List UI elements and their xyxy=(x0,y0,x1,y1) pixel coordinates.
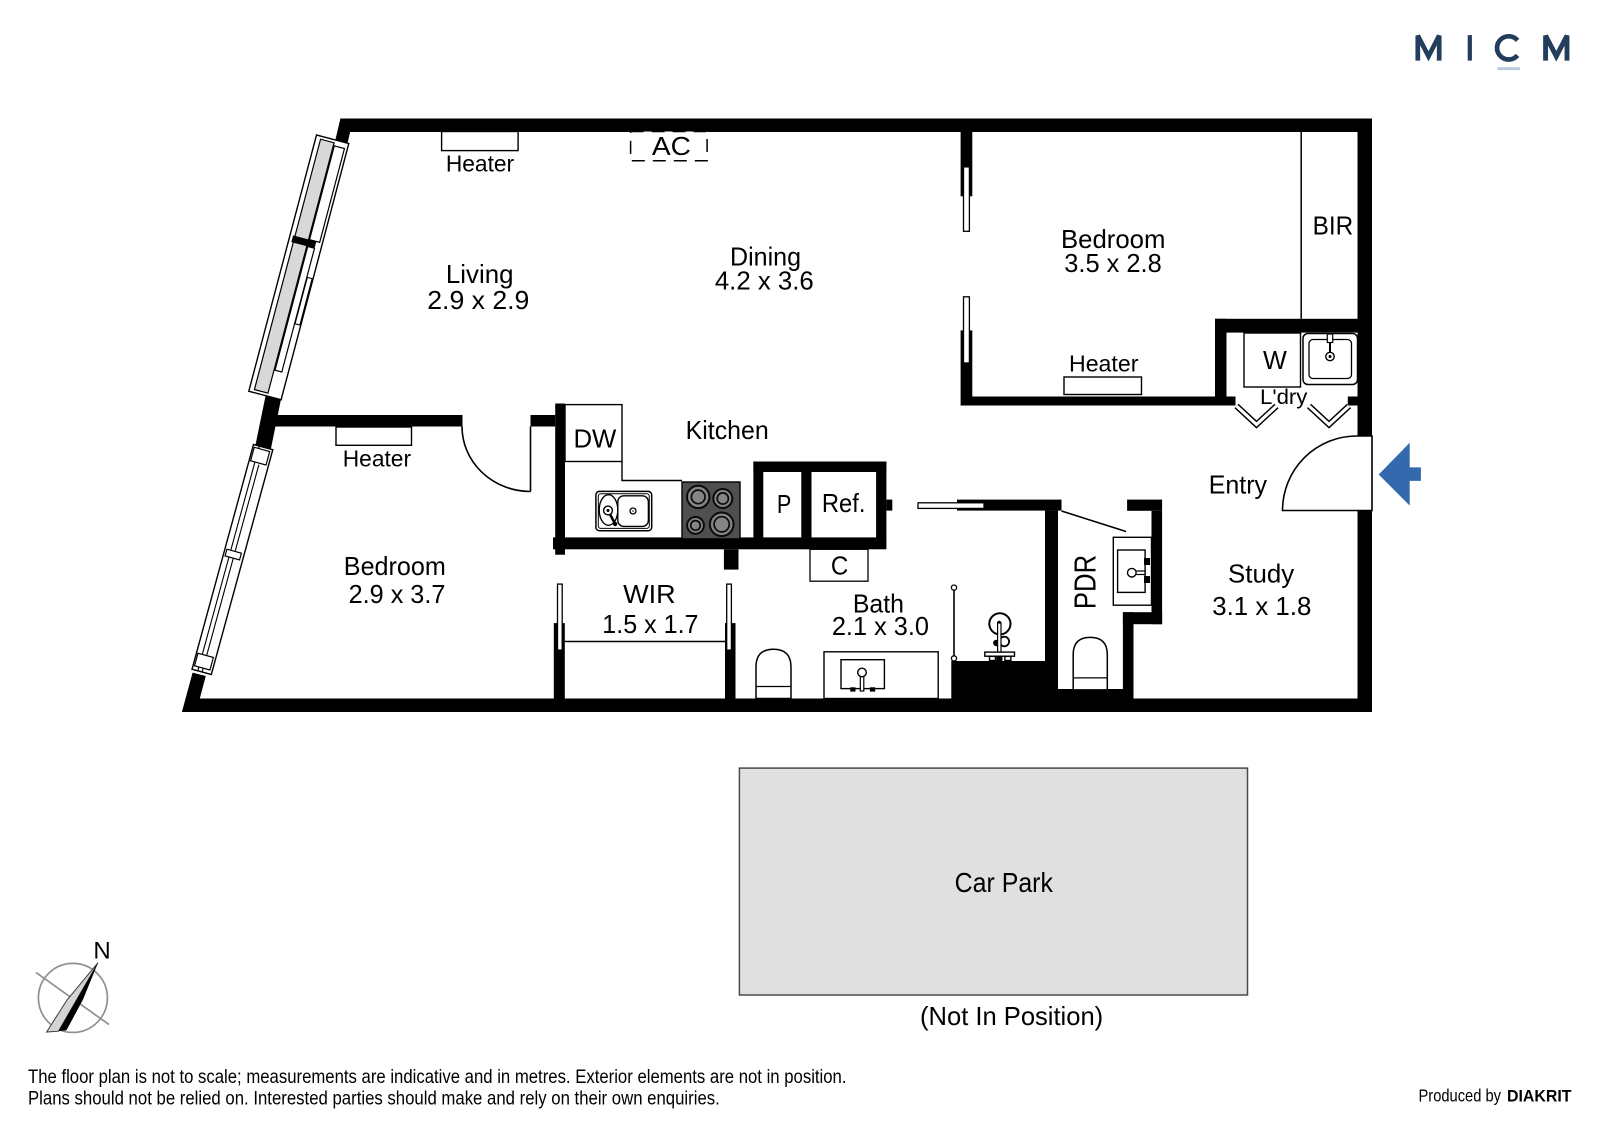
svg-text:The floor plan is not to scale: The floor plan is not to scale; measurem… xyxy=(28,1066,847,1088)
svg-text:3.1 x 1.8: 3.1 x 1.8 xyxy=(1212,591,1311,621)
svg-text:Bedroom: Bedroom xyxy=(344,551,446,581)
svg-text:4.2 x 3.6: 4.2 x 3.6 xyxy=(715,266,814,296)
svg-text:Heater: Heater xyxy=(1069,351,1139,377)
svg-text:L'dry: L'dry xyxy=(1260,386,1308,409)
svg-text:2.9 x 2.9: 2.9 x 2.9 xyxy=(427,285,529,315)
svg-text:1.5 x 1.7: 1.5 x 1.7 xyxy=(602,609,698,639)
svg-text:WIR: WIR xyxy=(623,579,676,609)
svg-text:C: C xyxy=(831,550,848,580)
svg-text:2.9 x 3.7: 2.9 x 3.7 xyxy=(349,579,446,609)
svg-text:BIR: BIR xyxy=(1313,211,1354,241)
svg-text:P: P xyxy=(777,489,791,519)
svg-text:Ref.: Ref. xyxy=(822,488,866,518)
svg-text:Entry: Entry xyxy=(1209,470,1267,500)
svg-text:(Not In Position): (Not In Position) xyxy=(920,1001,1103,1031)
svg-text:Kitchen: Kitchen xyxy=(686,415,769,445)
svg-text:Heater: Heater xyxy=(446,151,515,177)
svg-text:DW: DW xyxy=(573,423,616,453)
svg-text:N: N xyxy=(93,938,110,965)
svg-text:Car Park: Car Park xyxy=(955,867,1054,898)
svg-text:AC: AC xyxy=(652,131,691,161)
svg-text:PDR: PDR xyxy=(1068,555,1103,609)
svg-text:Plans should not be relied on.: Plans should not be relied on. Intereste… xyxy=(28,1088,720,1110)
svg-text:2.1 x 3.0: 2.1 x 3.0 xyxy=(832,611,929,641)
svg-text:3.5 x 2.8: 3.5 x 2.8 xyxy=(1064,248,1162,278)
svg-text:Study: Study xyxy=(1228,559,1294,589)
svg-text:Produced by: Produced by xyxy=(1419,1086,1502,1106)
svg-text:DIAKRIT: DIAKRIT xyxy=(1507,1087,1572,1106)
svg-text:W: W xyxy=(1263,345,1287,375)
svg-text:Heater: Heater xyxy=(343,446,412,472)
